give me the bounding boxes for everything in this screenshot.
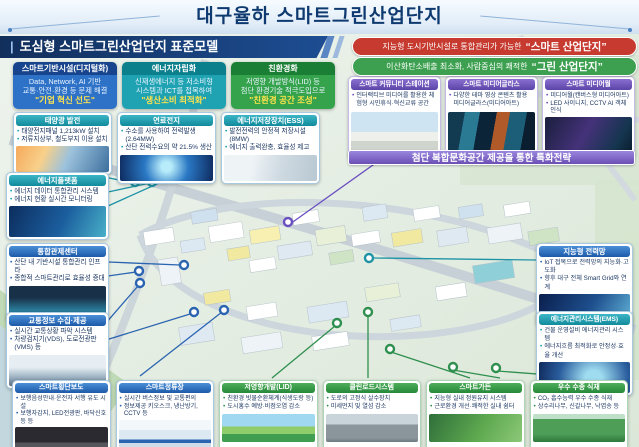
pillar-slogan: "생산소비 최적화" xyxy=(123,95,225,106)
solar-panels-photo xyxy=(16,146,109,172)
pillar-body: Data, Network, AI 기반 교통·안전·환경 등 문제 해결 "기… xyxy=(13,75,117,109)
card-title: 에너지관리시스템(EMS) xyxy=(539,314,630,325)
bullet: 에너지흐름 최적화로 안정성·효율 개선 xyxy=(540,343,629,359)
bullet-list: 에너지 데이터 통합관리 시스템 에너지 현황 실시간 모니터링 xyxy=(10,188,105,204)
bullet: 미디어월(캔버스형 미디어아트) xyxy=(546,92,631,100)
pillar-digital: 스마트기반시설(디지털화) Data, Network, AI 기반 교통·안전… xyxy=(13,62,117,109)
card-control-center: 통합관제센터 산단 내 기반시설 통합관리 인프라 종합적 스마트관리로 효율성… xyxy=(6,243,109,322)
pillar-body: 신재생에너지 등 저소비형 시스템과 ICT를 접목하여 "생산소비 최적화" xyxy=(122,75,226,109)
community-station-photo xyxy=(351,112,438,152)
bullet: 보행자감지, LED전광판, 바닥신호등 등 xyxy=(16,410,107,425)
strategy-banner: 첨단 복합문화공간 제공을 통한 특화전략 xyxy=(348,150,635,165)
bullet: IoT 접목으로 전력망의 지능화·고도화 xyxy=(540,259,629,275)
pillar-line: 신재생에너지 등 저소비형 xyxy=(123,77,225,86)
trees-photo xyxy=(533,414,626,442)
bullet: 수소를 사용하여 전력발생(2.64MW) xyxy=(121,128,212,144)
smart-garden-photo xyxy=(429,414,522,442)
bullet: 발전전력의 안정적 저장시설(8MW) xyxy=(225,128,316,144)
ribbon-bar: | xyxy=(10,39,14,54)
card-title: 교통정보 수집·제공 xyxy=(9,315,106,326)
decor-dot-right xyxy=(628,28,632,32)
bullet: 미세먼지 및 열섬 감소 xyxy=(327,403,418,411)
card-title: 지능형 전력망 xyxy=(539,246,630,257)
media-glass-photo xyxy=(448,112,535,152)
card-media-wall: 스마트 미디어월 미디어월(캔버스형 미디어아트) LED 사이니지, CCTV… xyxy=(542,76,635,160)
card-title: 에너지플랫폼 xyxy=(9,175,106,186)
pillar-eco: 친환경화 저영향 개발방식(LID) 등 첨단 환경기술 적극도입으로 "친환경… xyxy=(231,62,335,109)
bullet-list: 지능형 실내 정원유지 시스템 근로환경 개선·쾌적한 실내 쉼터 xyxy=(430,395,521,412)
bullet-list: 발전전력의 안정적 저장시설(8MW) 에너지 출력완충, 효율성 제고 xyxy=(225,128,316,153)
card-title: 태양광 발전 xyxy=(16,115,109,126)
bullet-list: 인터랙티브 미디어를 활용한 체험형 시민휴식·혁신교류 공간 xyxy=(352,92,437,110)
card-ess: 에너지저장장치(ESS) 발전전력의 안정적 저장시설(8MW) 에너지 출력완… xyxy=(221,112,320,184)
bullet-list: 산단 내 기반시설 통합관리 인프라 종합적 스마트관리로 효율성 증대 xyxy=(10,259,105,284)
bullet-list: 도로의 고정식 살수장치 미세먼지 및 열섬 감소 xyxy=(327,395,418,412)
bullet: 보행음성안내·운전자 서행 유도 시설 xyxy=(16,395,107,410)
card-smart-crosswalk: 스마트횡단보도 보행음성안내·운전자 서행 유도 시설 보행자감지, LED전광… xyxy=(12,380,111,447)
bullet: 에너지 출력완충, 효율성 제고 xyxy=(225,144,316,152)
green-complex-banner: 이산화탄소배출 최소화, 사람중심의 쾌적한 “그린 산업단지” xyxy=(352,57,637,76)
banner-prefix: 이산화탄소배출 최소화, 사람중심의 쾌적한 xyxy=(386,61,527,72)
ess-containers-photo xyxy=(224,155,317,181)
bullet-list: 다양한 테마 영상 콘텐츠 활용 미디어글라스(미디어아트) xyxy=(449,92,534,110)
card-title: 에너지저장장치(ESS) xyxy=(224,115,317,126)
fuel-cell-photo xyxy=(120,155,213,181)
bullet: 차량검지기(VDS), 도로전광판(VMS) 등 xyxy=(10,336,105,352)
title-band: 대구율하 스마트그린산업단지 xyxy=(0,0,639,34)
pillar-body: 저영향 개발방식(LID) 등 첨단 환경기술 적극도입으로 "친환경 공간 조… xyxy=(231,75,335,109)
bullet-list: 친환경 빗물순환체계(식생도랑 등) 도시홍수 예방·비점오염 감소 xyxy=(223,395,314,412)
bottom-facility-row: 스마트횡단보도 보행음성안내·운전자 서행 유도 시설 보행자감지, LED전광… xyxy=(12,380,628,447)
pillar-line: Data, Network, AI 기반 xyxy=(14,77,116,86)
bullet: 에너지 현황 실시간 모니터링 xyxy=(10,196,105,204)
card-title: 스마트횡단보도 xyxy=(15,383,108,393)
pillar-title: 스마트기반시설(디지털화) xyxy=(13,62,117,75)
bullet-list: 보행음성안내·운전자 서행 유도 시설 보행자감지, LED전광판, 바닥신호등… xyxy=(16,395,107,425)
pillar-line: 교통·안전·환경 등 문제 해결 xyxy=(14,86,116,95)
bullet-list: 실시간 교통상황 파악 시스템 차량검지기(VDS), 도로전광판(VMS) 등 xyxy=(10,328,105,353)
card-title: 스마트 미디어글라스 xyxy=(448,79,535,90)
pillar-line: 시스템과 ICT를 접목하여 xyxy=(123,86,225,95)
bullet: 도시홍수 예방·비점오염 감소 xyxy=(223,403,314,411)
card-traffic-info: 교통정보 수집·제공 실시간 교통상황 파악 시스템 차량검지기(VDS), 도… xyxy=(6,312,109,389)
bullet: 근로환경 개선·쾌적한 실내 쉼터 xyxy=(430,403,521,411)
bullet-list: 건물 운영설비 에너지관리 시스템 에너지흐름 최적화로 안정성·효율 개선 xyxy=(540,327,629,360)
bullet: 도로의 고정식 살수장치 xyxy=(327,395,418,403)
card-title: 우수 수종 식재 xyxy=(533,383,626,393)
bullet-list: 미디어월(캔버스형 미디어아트) LED 사이니지, CCTV AI 객체인식 xyxy=(546,92,631,115)
card-tree-planting: 우수 수종 식재 CO₂ 흡수능력 우수 수종 식재 상수리나무, 신갈나무, … xyxy=(530,380,629,447)
bullet-list: IoT 접목으로 전력망의 지능화·고도화 향후 대구 전체 Smart Gri… xyxy=(540,259,629,292)
card-smart-bus-stop: 스마트정류장 실시간 버스정보 및 교통편의 정보제공 키오스크, 냉난방기, … xyxy=(116,380,215,447)
bullet: 실시간 교통상황 파악 시스템 xyxy=(10,328,105,336)
bullet: CO₂ 흡수능력 우수 수종 식재 xyxy=(534,395,625,403)
bus-stop-photo xyxy=(119,420,212,447)
bullet: 에너지 데이터 통합관리 시스템 xyxy=(10,188,105,196)
card-title: 스마트 커뮤니티 스테이션 xyxy=(351,79,438,90)
infographic-page: 대구율하 스마트그린산업단지 |도심형 스마트그린산업단지 표준모델 지능형 도… xyxy=(0,0,639,447)
card-title: 클린로드시스템 xyxy=(326,383,419,393)
page-title: 대구율하 스마트그린산업단지 xyxy=(0,0,639,33)
card-clean-road: 클린로드시스템 도로의 고정식 살수장치 미세먼지 및 열섬 감소 xyxy=(323,380,422,447)
pillar-slogan: "친환경 공간 조성" xyxy=(232,95,334,106)
smart-culture-row: 스마트 커뮤니티 스테이션 인터랙티브 미디어를 활용한 체험형 시민휴식·혁신… xyxy=(348,76,635,160)
bullet-list: CO₂ 흡수능력 우수 수종 식재 상수리나무, 신갈나무, 낙엽송 등 xyxy=(534,395,625,412)
crosswalk-photo xyxy=(15,427,108,447)
bullet: 건물 운영설비 에너지관리 시스템 xyxy=(540,327,629,343)
bullet: 인터랙티브 미디어를 활용한 체험형 시민휴식·혁신교류 공간 xyxy=(352,92,437,107)
banner-highlight: “스마트 산업단지” xyxy=(526,39,607,54)
bullet-list: 수소를 사용하여 전력발생(2.64MW) 산단 전력수요의 약 21.5% 생… xyxy=(121,128,212,153)
bullet: 친환경 빗물순환체계(식생도랑 등) xyxy=(223,395,314,403)
card-title: 연료전지 xyxy=(120,115,213,126)
card-title: 통합관제센터 xyxy=(9,246,106,257)
bullet: LED 사이니지, CCTV AI 객체인식 xyxy=(546,100,631,115)
decor-dot-left xyxy=(8,28,12,32)
card-community-station: 스마트 커뮤니티 스테이션 인터랙티브 미디어를 활용한 체험형 시민휴식·혁신… xyxy=(348,76,441,160)
bullet-list: 실시간 버스정보 및 교통편의 정보제공 키오스크, 냉난방기, CCTV 등 xyxy=(120,395,211,418)
clean-road-photo xyxy=(326,414,419,442)
card-smart-garden: 스마트가든 지능형 실내 정원유지 시스템 근로환경 개선·쾌적한 실내 쉼터 xyxy=(426,380,525,447)
card-title: 스마트정류장 xyxy=(119,383,212,393)
card-title: 스마트가든 xyxy=(429,383,522,393)
bullet: 상수리나무, 신갈나무, 낙엽송 등 xyxy=(534,403,625,411)
bullet: 태양전지패널 1,213kW 설치 xyxy=(17,128,108,136)
pillar-line: 첨단 환경기술 적극도입으로 xyxy=(232,86,334,95)
card-energy-platform: 에너지플랫폼 에너지 데이터 통합관리 시스템 에너지 현황 실시간 모니터링 xyxy=(6,172,109,240)
pillar-energy: 에너지자립화 신재생에너지 등 저소비형 시스템과 ICT를 접목하여 "생산소… xyxy=(122,62,226,109)
bullet: 산단 전력수요의 약 21.5% 생산 xyxy=(121,144,212,152)
pillar-slogan: "기업 혁신 선도" xyxy=(14,95,116,106)
bullet-list: 태양전지패널 1,213kW 설치 저류지상부, 철도부지 이용 설치 xyxy=(17,128,108,144)
banner-prefix: 지능형 도시기반시설로 통합관리가 가능한 xyxy=(382,41,521,52)
lid-illustration xyxy=(222,414,315,442)
bullet: 저류지상부, 철도부지 이용 설치 xyxy=(17,136,108,144)
bullet: 지능형 실내 정원유지 시스템 xyxy=(430,395,521,403)
card-title: 저영향개발(LID) xyxy=(222,383,315,393)
section-ribbon: |도심형 스마트그린산업단지 표준모델 xyxy=(0,36,328,58)
pillar-title: 친환경화 xyxy=(231,62,335,75)
bullet: 향후 대구 전체 Smart Grid와 연계 xyxy=(540,275,629,291)
energy-platform-photo xyxy=(9,206,106,237)
card-lid: 저영향개발(LID) 친환경 빗물순환체계(식생도랑 등) 도시홍수 예방·비점… xyxy=(219,380,318,447)
pillar-row: 스마트기반시설(디지털화) Data, Network, AI 기반 교통·안전… xyxy=(13,62,335,109)
smart-complex-banner: 지능형 도시기반시설로 통합관리가 가능한 “스마트 산업단지” xyxy=(352,37,637,56)
card-title: 스마트 미디어월 xyxy=(545,79,632,90)
card-fuel-cell: 연료전지 수소를 사용하여 전력발생(2.64MW) 산단 전력수요의 약 21… xyxy=(117,112,216,184)
bullet: 정보제공 키오스크, 냉난방기, CCTV 등 xyxy=(120,403,211,418)
pillar-title: 에너지자립화 xyxy=(122,62,226,75)
pillar-line: 저영향 개발방식(LID) 등 xyxy=(232,77,334,86)
ribbon-label: 도심형 스마트그린산업단지 표준모델 xyxy=(20,39,219,54)
bullet: 산단 내 기반시설 통합관리 인프라 xyxy=(10,259,105,275)
banner-highlight: “그린 산업단지” xyxy=(531,59,602,74)
bullet: 실시간 버스정보 및 교통편의 xyxy=(120,395,211,403)
card-media-glass: 스마트 미디어글라스 다양한 테마 영상 콘텐츠 활용 미디어글라스(미디어아트… xyxy=(445,76,538,160)
card-solar-power: 태양광 발전 태양전지패널 1,213kW 설치 저류지상부, 철도부지 이용 … xyxy=(13,112,112,175)
bullet: 다양한 테마 영상 콘텐츠 활용 미디어글라스(미디어아트) xyxy=(449,92,534,107)
bullet: 종합적 스마트관리로 효율성 증대 xyxy=(10,275,105,283)
